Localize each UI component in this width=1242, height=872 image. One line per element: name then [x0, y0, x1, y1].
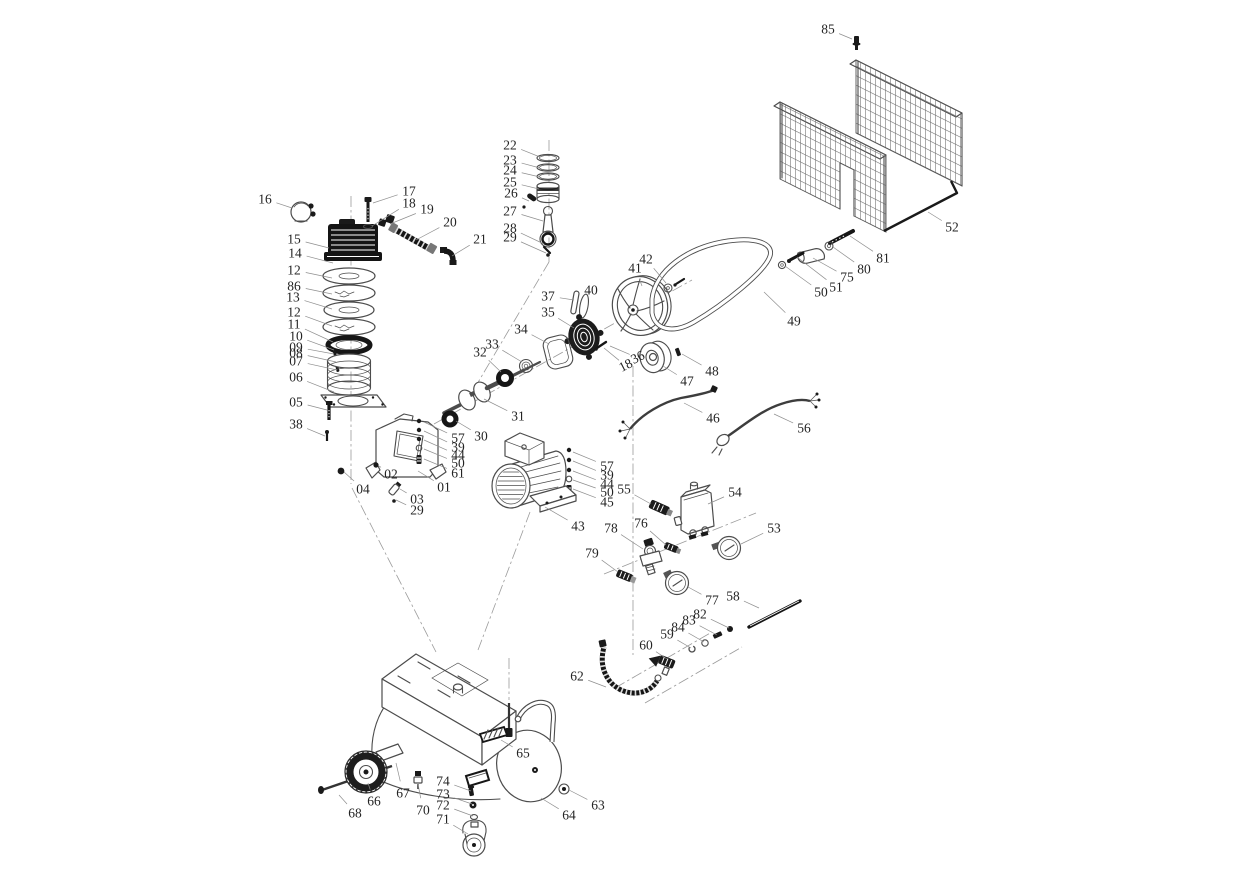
- caster-assembly: [463, 785, 486, 856]
- leader-line: [558, 318, 574, 328]
- leader-line: [610, 346, 630, 354]
- valve-plate-stack: [323, 268, 375, 353]
- leader-line: [744, 601, 759, 608]
- leader-line: [307, 381, 334, 392]
- leader-line: [400, 489, 407, 493]
- part-number-label: 22: [503, 138, 517, 153]
- leader-line: [522, 163, 540, 168]
- leader-line: [454, 809, 473, 816]
- part-number-label: 43: [571, 519, 585, 534]
- part-number-label: 71: [436, 812, 450, 827]
- part-number-label: 29: [503, 230, 517, 245]
- leader-line: [741, 533, 763, 544]
- part-number-label: 42: [639, 252, 653, 267]
- leader-line: [560, 298, 574, 300]
- part-number-label: 66: [367, 794, 381, 809]
- leader-line: [304, 301, 332, 309]
- part-number-label: 49: [787, 314, 801, 329]
- leader-line: [684, 403, 702, 412]
- electric-motor: [492, 433, 576, 512]
- part-number-label: 37: [541, 289, 555, 304]
- leader-line: [373, 195, 398, 203]
- part-number-label: 80: [857, 262, 871, 277]
- leader-line: [688, 587, 701, 594]
- part-number-label: 13: [286, 290, 300, 305]
- unloader-fitting: [648, 499, 674, 517]
- leader-line: [663, 366, 677, 375]
- leader-line: [839, 34, 852, 39]
- leader-line: [573, 461, 596, 470]
- part-number-label: 54: [728, 485, 742, 500]
- leader-line: [396, 763, 400, 781]
- leader-line: [850, 236, 873, 251]
- part-number-label: 53: [767, 521, 781, 536]
- piston-assembly: [522, 154, 559, 256]
- part-number-label: 85: [821, 22, 835, 37]
- part-number-label: 51: [829, 280, 843, 295]
- part-number-label: 50: [814, 285, 828, 300]
- power-cord-46: [619, 385, 718, 439]
- leader-line: [573, 480, 596, 488]
- part-number-label: 26: [504, 186, 518, 201]
- leader-line: [569, 790, 587, 799]
- part-number-label: 68: [348, 806, 362, 821]
- leader-line: [621, 535, 643, 549]
- pressure-gauge-77: [663, 570, 688, 595]
- pressure-gauge-53: [711, 537, 740, 560]
- part-number-label: 70: [416, 803, 430, 818]
- discharge-pipe: [749, 601, 800, 627]
- leader-line: [634, 495, 651, 504]
- part-number-label: 16: [258, 192, 272, 207]
- elbow-fitting-79: [616, 569, 638, 584]
- leader-line: [604, 348, 619, 360]
- part-number-label: 18: [402, 196, 416, 211]
- leader-line: [456, 421, 471, 430]
- pressure-switch: [674, 482, 714, 540]
- leader-line: [344, 472, 354, 481]
- cylinder-sleeve: [321, 354, 386, 407]
- leader-line: [276, 203, 292, 208]
- leader-line: [521, 149, 540, 157]
- part-number-label: 15: [287, 232, 301, 247]
- leader-line: [307, 429, 325, 436]
- leader-line: [785, 266, 811, 285]
- head-bolt-and-washer: [364, 197, 373, 229]
- leader-line: [928, 212, 942, 221]
- leader-line: [453, 825, 468, 834]
- leader-line: [677, 640, 691, 648]
- belt-guard-mesh: [774, 60, 962, 232]
- part-number-label: 79: [585, 546, 599, 561]
- leader-line: [522, 185, 539, 189]
- part-number-label: 52: [945, 220, 959, 235]
- leader-line: [588, 680, 606, 687]
- part-number-label: 06: [289, 370, 303, 385]
- leader-line: [305, 316, 332, 326]
- part-number-label: 55: [617, 482, 631, 497]
- crankshaft: [442, 360, 541, 428]
- part-number-label: 30: [474, 429, 488, 444]
- part-number-label: 45: [600, 495, 614, 510]
- leader-line: [774, 414, 793, 423]
- leader-line: [484, 399, 507, 411]
- leader-line: [573, 471, 596, 480]
- leader-line: [813, 258, 837, 271]
- part-number-label: 07: [289, 354, 303, 369]
- leader-line: [602, 560, 618, 572]
- leader-line: [339, 795, 347, 804]
- part-number-label: 47: [680, 374, 694, 389]
- leader-line: [521, 214, 543, 221]
- part-number-label: 58: [726, 589, 740, 604]
- exploded-parts-diagram: Air compressor exploded parts diagram: [0, 0, 1242, 872]
- part-number-label: 01: [437, 480, 451, 495]
- part-number-label: 38: [289, 417, 303, 432]
- leader-line: [711, 619, 729, 628]
- leader-line: [682, 354, 702, 365]
- part-number-label: 31: [511, 409, 525, 424]
- crankcase: [338, 414, 446, 503]
- leader-line: [688, 633, 704, 642]
- part-number-label: 81: [876, 251, 890, 266]
- part-number-label: 35: [541, 305, 555, 320]
- diagram-canvas: Air compressor exploded parts diagram: [0, 0, 1242, 872]
- part-number-label: 63: [591, 798, 605, 813]
- part-number-label: 61: [451, 466, 465, 481]
- part-number-label: 77: [705, 593, 719, 608]
- leader-line: [418, 784, 421, 798]
- part-number-label: 27: [503, 204, 517, 219]
- leader-line: [764, 292, 785, 313]
- leader-line: [545, 507, 568, 520]
- part-number-label: 20: [443, 215, 457, 230]
- part-number-label: 19: [420, 202, 434, 217]
- part-number-label: 72: [436, 798, 450, 813]
- part-number-label: 46: [706, 411, 720, 426]
- part-number-label: 78: [604, 521, 618, 536]
- leader-line: [522, 198, 529, 201]
- part-number-label: 33: [485, 337, 499, 352]
- leader-line: [489, 360, 501, 372]
- leader-line: [306, 242, 329, 248]
- part-number-label: 62: [570, 669, 584, 684]
- part-number-label: 04: [356, 482, 370, 497]
- tank-valve-70: [414, 771, 422, 789]
- part-number-label: 05: [289, 395, 303, 410]
- leader-line: [700, 626, 717, 635]
- safety-valve: [640, 538, 662, 575]
- leader-line: [541, 798, 559, 809]
- part-number-label: 34: [514, 322, 528, 337]
- leader-line: [452, 245, 470, 256]
- part-number-label: 40: [584, 283, 598, 298]
- part-number-label: 48: [705, 364, 719, 379]
- air-filter: [291, 202, 316, 222]
- leader-line: [522, 173, 540, 177]
- leader-line: [396, 500, 406, 505]
- leader-line: [308, 405, 327, 410]
- part-number-label: 29: [410, 503, 424, 518]
- part-number-label: 56: [797, 421, 811, 436]
- part-number-label: 65: [516, 746, 530, 761]
- part-number-label: 59: [660, 627, 674, 642]
- part-number-label: 60: [639, 638, 653, 653]
- part-number-label: 64: [562, 808, 576, 823]
- part-number-label: 67: [396, 786, 410, 801]
- leader-line: [416, 228, 439, 240]
- guard-fastener-set: [778, 231, 853, 269]
- part-number-label: 02: [384, 467, 398, 482]
- guard-screw: [853, 36, 861, 50]
- part-number-label: 12: [287, 263, 301, 278]
- leader-line: [833, 247, 854, 262]
- part-number-label: 21: [473, 232, 487, 247]
- leader-line: [573, 452, 596, 461]
- part-number-label: 76: [634, 516, 648, 531]
- leader-line: [502, 350, 522, 362]
- part-number-label: 14: [288, 246, 302, 261]
